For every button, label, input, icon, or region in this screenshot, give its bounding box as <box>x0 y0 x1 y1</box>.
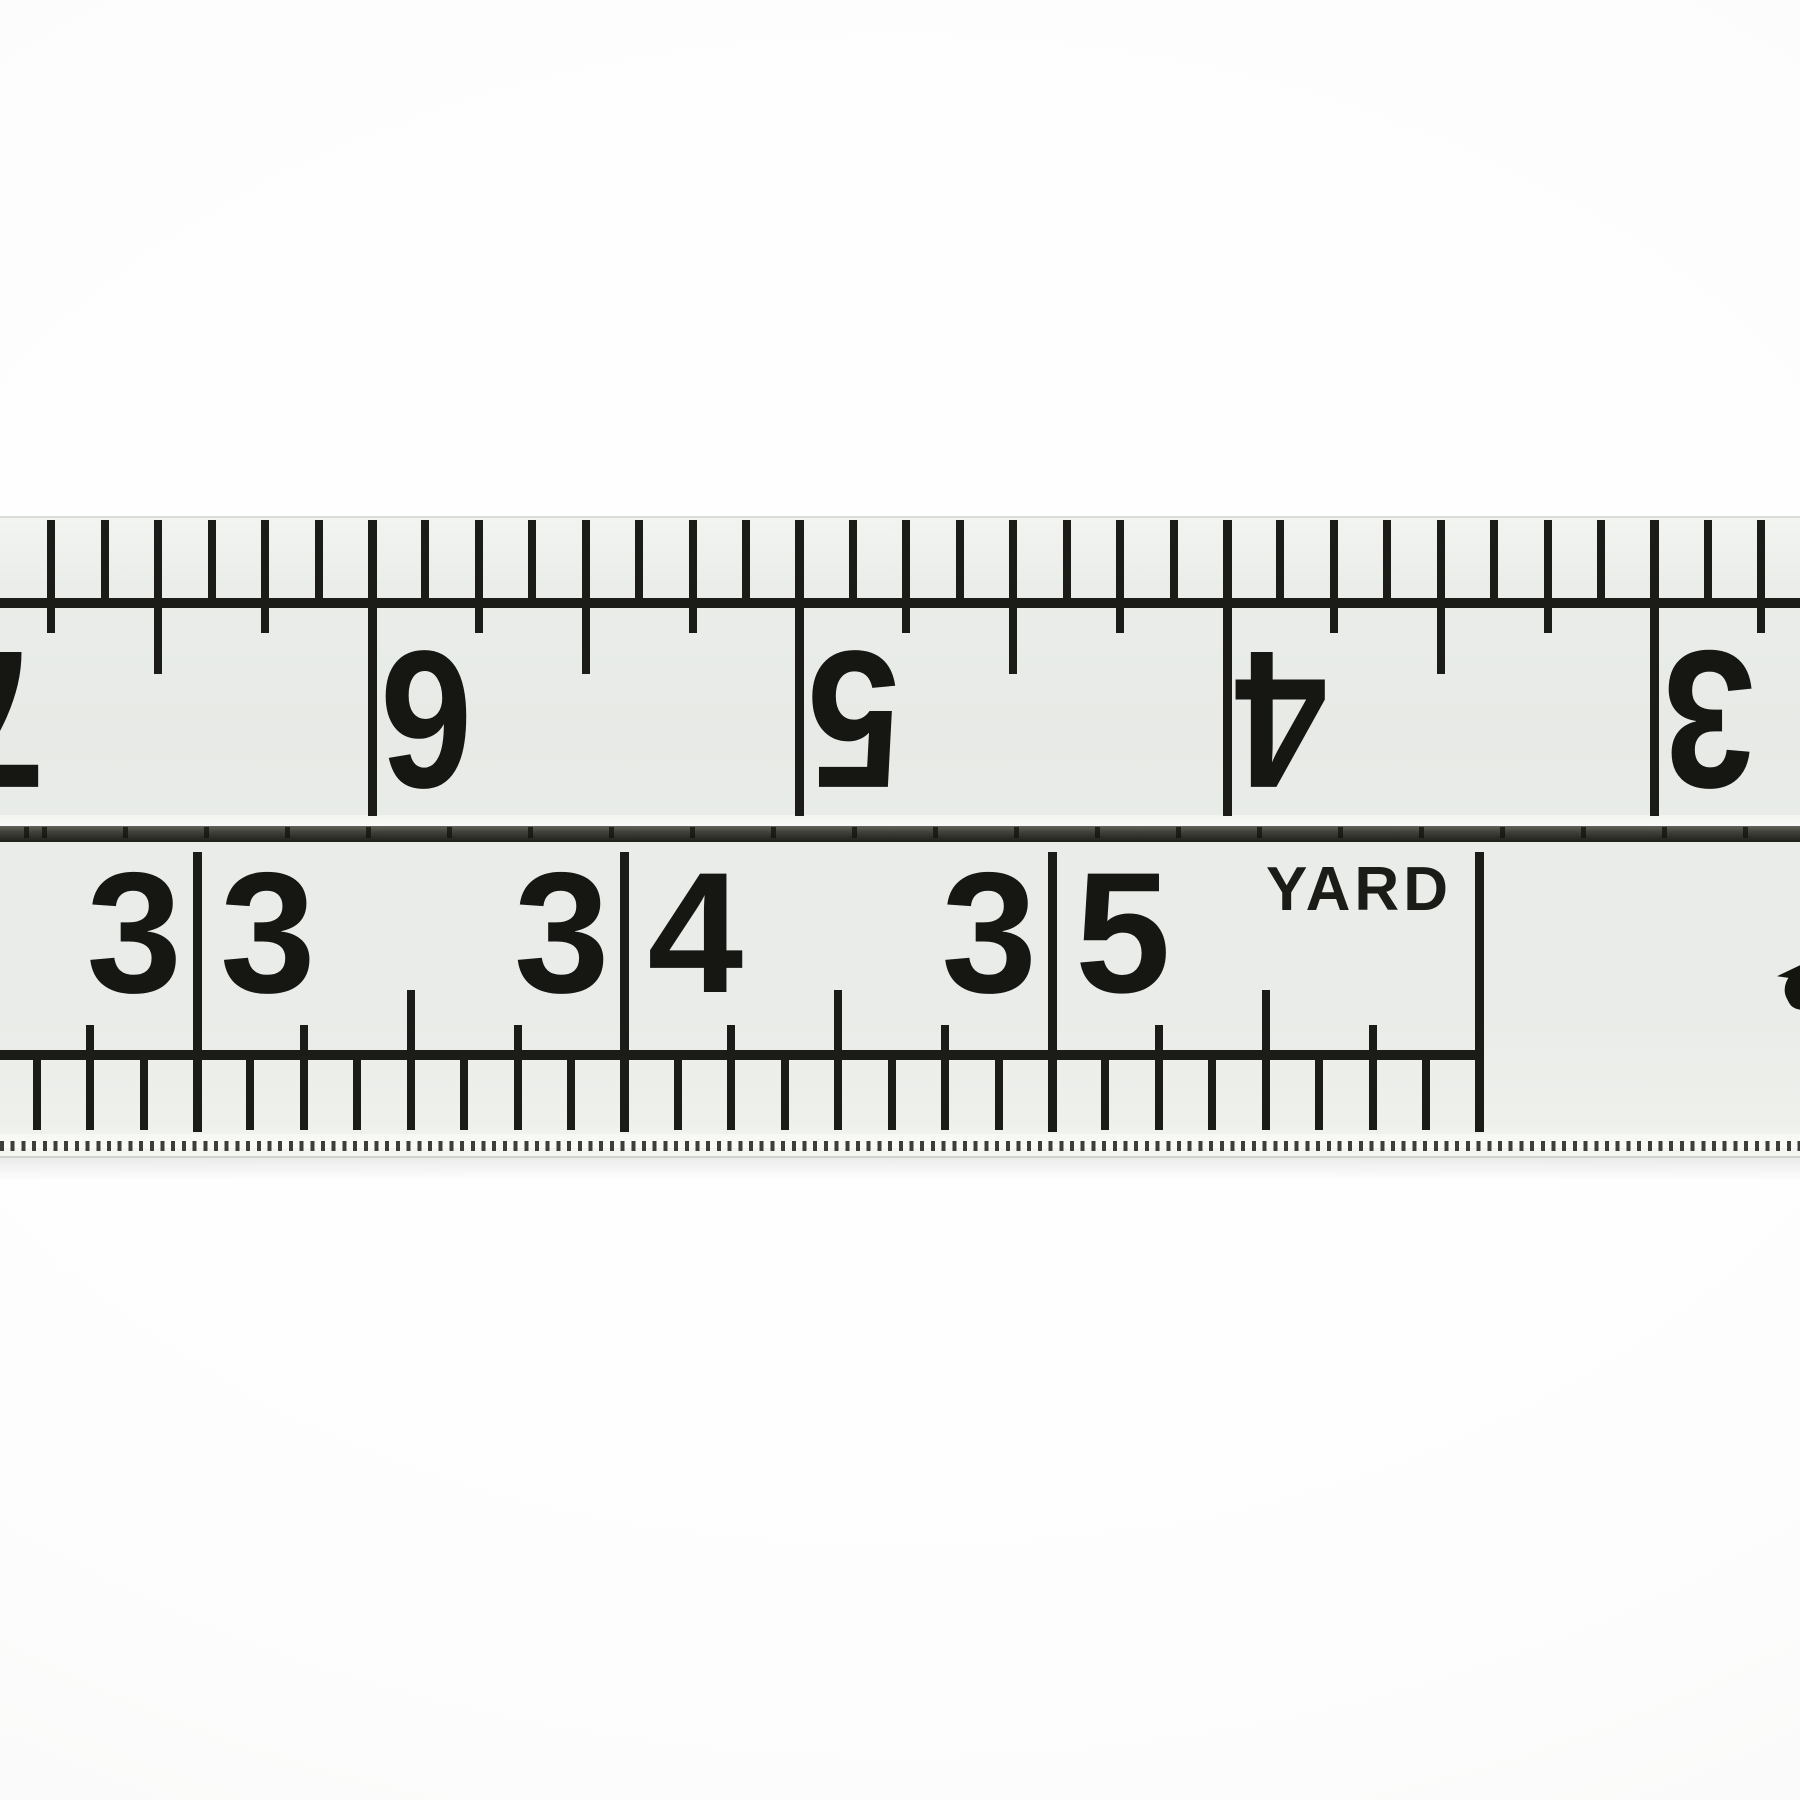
tick-eighth <box>1208 1056 1216 1130</box>
tick-eighth <box>1422 1056 1430 1130</box>
tick-eighth <box>995 1056 1003 1130</box>
bottom-scale-inch-number: 33 <box>86 868 315 998</box>
tick-quarter <box>1116 520 1124 633</box>
tick-eighth <box>888 1056 896 1130</box>
tick-eighth <box>246 1056 254 1130</box>
tick-eighth <box>849 520 857 604</box>
top-scale-inch-number: 4 <box>1245 645 1316 793</box>
tick-eighth <box>1383 520 1391 604</box>
top-scale-baseline <box>0 598 1800 608</box>
top-scale-inch-number: 6 <box>390 645 461 793</box>
tick-quarter <box>475 520 483 633</box>
tick-eighth <box>635 520 643 604</box>
tick-eighth <box>1170 520 1178 604</box>
tick-eighth <box>956 520 964 604</box>
tick-quarter <box>941 1025 949 1130</box>
tick-eighth <box>742 520 750 604</box>
tick-eighth <box>315 520 323 604</box>
tick-half <box>407 990 415 1130</box>
top-inch-scale: 76543 <box>0 516 1800 828</box>
tick-half <box>582 520 590 674</box>
bottom-scale-inch-number: 35 <box>941 868 1170 998</box>
tick-quarter <box>1330 520 1338 633</box>
tick-eighth <box>208 520 216 604</box>
tick-eighth <box>33 1056 41 1130</box>
tick-eighth <box>1101 1056 1109 1130</box>
tick-half <box>154 520 162 674</box>
tick-eighth <box>528 520 536 604</box>
tick-quarter <box>689 520 697 633</box>
tick-eighth <box>140 1056 148 1130</box>
top-scale-inch-number: 7 <box>0 645 34 793</box>
tick-quarter <box>86 1025 94 1130</box>
yard-label: YARD <box>1266 859 1452 921</box>
bottom-edge-dotted-line <box>0 1141 1800 1151</box>
tick-eighth <box>1063 520 1071 604</box>
bottom-scale-inch-number-text: 35 <box>941 868 1208 998</box>
tick-inch <box>1223 520 1232 816</box>
tick-quarter <box>47 520 55 633</box>
photo-of-tape-measure: 76543 333435YARD <box>0 0 1800 1800</box>
tick-half <box>834 990 842 1130</box>
tick-inch <box>1475 852 1484 1132</box>
tick-eighth <box>421 520 429 604</box>
tick-quarter <box>514 1025 522 1130</box>
bottom-scale-inch-number: 34 <box>514 868 743 998</box>
tick-half <box>1009 520 1017 674</box>
ruler-drop-shadow <box>0 1158 1800 1180</box>
tick-eighth <box>1490 520 1498 604</box>
tick-eighth <box>101 520 109 604</box>
tick-quarter <box>300 1025 308 1130</box>
tick-quarter <box>1155 1025 1163 1130</box>
tick-eighth <box>1276 520 1284 604</box>
bottom-inch-scale: 333435YARD <box>0 842 1800 1158</box>
tick-quarter <box>902 520 910 633</box>
tick-half <box>1437 520 1445 674</box>
bottom-scale-inch-number-text: 33 <box>86 868 353 998</box>
tick-quarter <box>261 520 269 633</box>
printed-mark-partial <box>1778 962 1800 1012</box>
top-scale-inch-number: 3 <box>1673 645 1744 793</box>
tick-eighth <box>1597 520 1605 604</box>
tick-quarter <box>1544 520 1552 633</box>
tick-quarter <box>727 1025 735 1130</box>
top-scale-inch-number: 5 <box>818 645 889 793</box>
tick-eighth <box>1315 1056 1323 1130</box>
tick-inch <box>795 520 804 816</box>
tick-inch <box>368 520 377 816</box>
bottom-scale-inch-number-text: 34 <box>514 868 781 998</box>
tick-eighth <box>353 1056 361 1130</box>
tick-eighth <box>460 1056 468 1130</box>
tick-quarter <box>1369 1025 1377 1130</box>
tick-eighth <box>674 1056 682 1130</box>
tick-eighth <box>567 1056 575 1130</box>
tick-half <box>1262 990 1270 1130</box>
bottom-scale-baseline <box>0 1050 1484 1060</box>
tick-eighth <box>1704 520 1712 604</box>
tick-quarter <box>1757 520 1765 633</box>
tick-inch <box>1650 520 1659 816</box>
tick-eighth <box>781 1056 789 1130</box>
